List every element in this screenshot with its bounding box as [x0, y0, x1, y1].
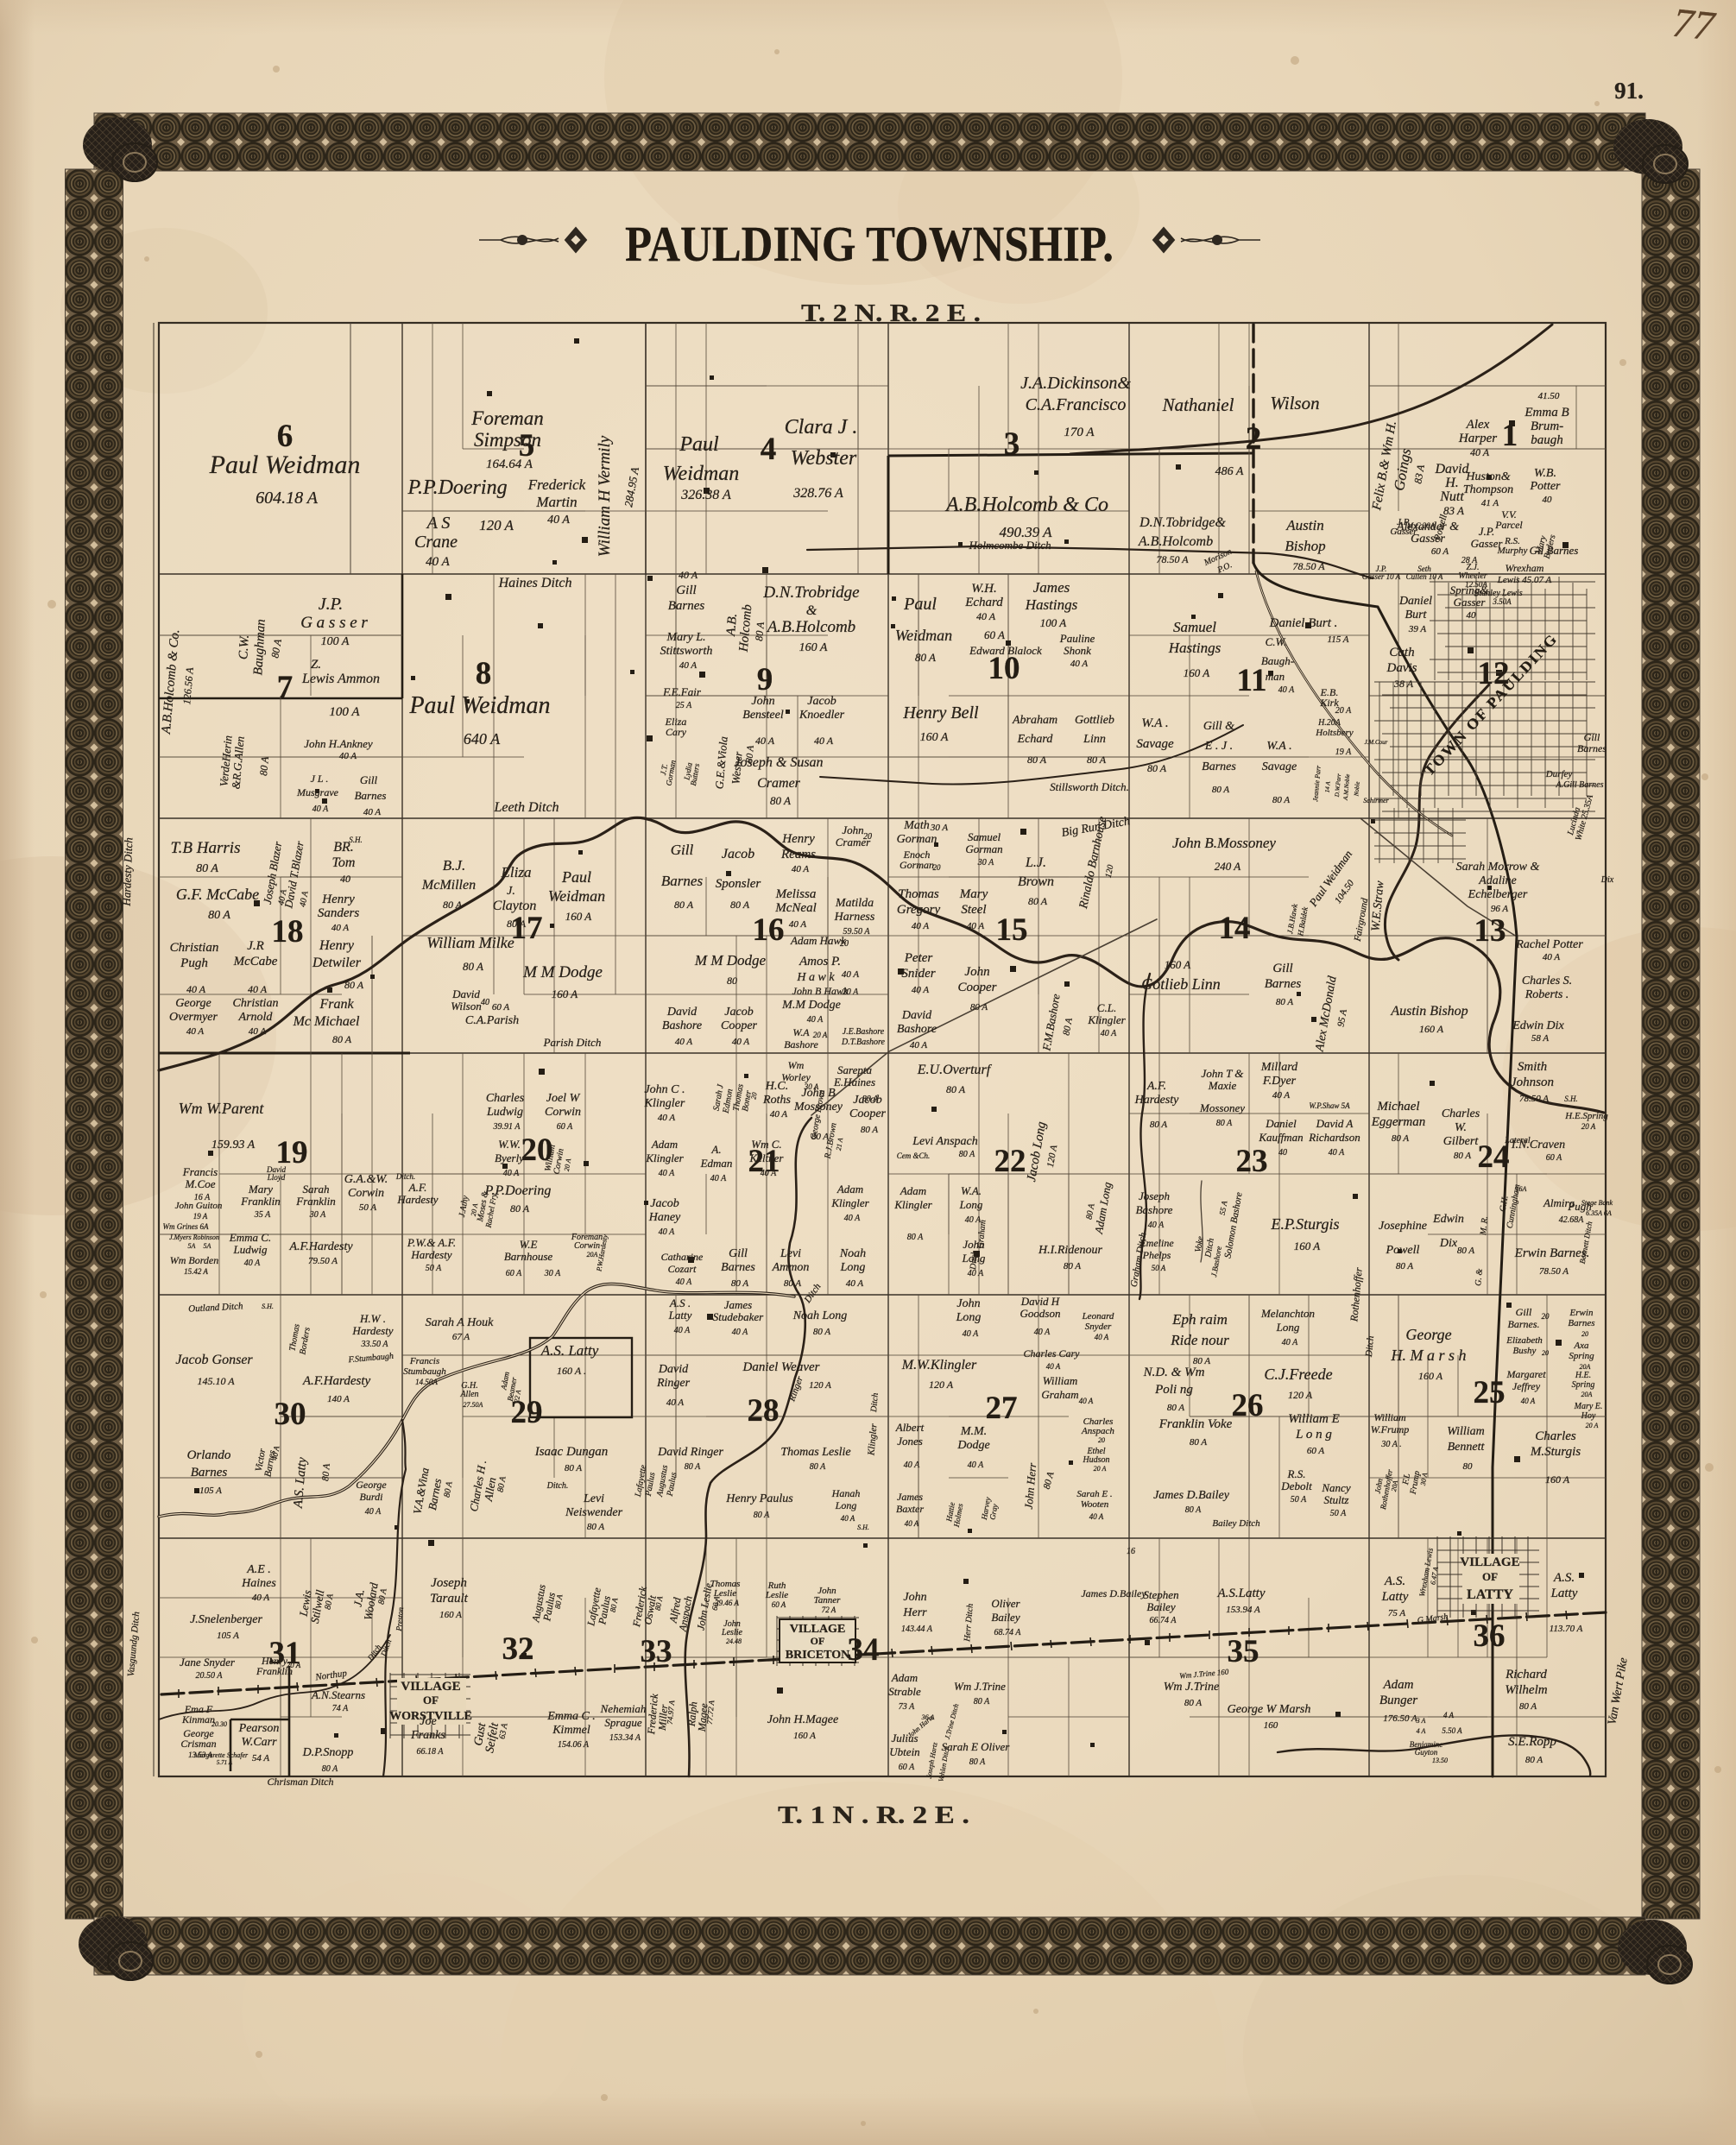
- svg-text:Adam Hawk: Adam Hawk: [790, 934, 846, 947]
- svg-text:6: 6: [277, 419, 294, 454]
- svg-text:326.38 A: 326.38 A: [680, 488, 731, 502]
- svg-text:Ditch: Ditch: [969, 1250, 980, 1271]
- svg-text:James: James: [897, 1491, 923, 1503]
- svg-text:George: George: [175, 997, 211, 1010]
- svg-text:60 A: 60 A: [899, 1763, 915, 1772]
- svg-text:Gasser: Gasser: [1471, 537, 1504, 550]
- svg-text:Gill: Gill: [729, 1247, 748, 1260]
- svg-text:160 A: 160 A: [565, 910, 592, 923]
- svg-text:Pugh: Pugh: [180, 956, 208, 970]
- svg-text:96 A: 96 A: [1491, 904, 1509, 914]
- svg-text:James D.Bailey: James D.Bailey: [1153, 1489, 1230, 1502]
- svg-text:Echard: Echard: [1017, 733, 1054, 746]
- svg-text:Maxie: Maxie: [1208, 1079, 1237, 1092]
- svg-text:40 A: 40 A: [244, 1259, 261, 1268]
- svg-text:35 A: 35 A: [254, 1210, 271, 1220]
- svg-text:James D.Bailey: James D.Bailey: [1081, 1587, 1146, 1599]
- svg-text:100 A: 100 A: [329, 705, 360, 719]
- svg-text:S.H.: S.H.: [857, 1524, 869, 1531]
- svg-text:Knoedler: Knoedler: [799, 709, 845, 722]
- svg-text:40 A: 40 A: [792, 864, 810, 874]
- svg-text:11: 11: [1237, 663, 1267, 698]
- svg-text:Burt: Burt: [1405, 609, 1428, 621]
- svg-text:Paul Weidman: Paul Weidman: [209, 451, 361, 479]
- svg-text:24.48: 24.48: [726, 1637, 742, 1645]
- svg-text:Hardesty: Hardesty: [396, 1193, 438, 1206]
- svg-text:Cath: Cath: [1389, 646, 1414, 659]
- svg-text:Sarah A Houk: Sarah A Houk: [426, 1316, 495, 1329]
- svg-text:40 A: 40 A: [659, 1169, 675, 1178]
- svg-text:39.91 A: 39.91 A: [493, 1122, 521, 1132]
- svg-text:A.N.Stearns: A.N.Stearns: [311, 1688, 365, 1701]
- svg-text:Mc Michael: Mc Michael: [293, 1014, 360, 1029]
- svg-text:Math: Math: [903, 819, 930, 832]
- svg-text:16A: 16A: [1516, 1185, 1527, 1193]
- svg-text:A.B.Holcomb: A.B.Holcomb: [1138, 534, 1213, 549]
- svg-text:40 A: 40 A: [248, 983, 268, 995]
- svg-text:PAULDING TOWNSHIP.: PAULDING TOWNSHIP.: [625, 216, 1114, 272]
- svg-text:&: &: [806, 603, 817, 618]
- svg-text:Guyton: Guyton: [1415, 1748, 1438, 1757]
- svg-text:160 A .: 160 A .: [557, 1365, 586, 1377]
- svg-text:Cullen 10 A: Cullen 10 A: [1406, 572, 1443, 581]
- svg-text:Durfey: Durfey: [1545, 769, 1573, 779]
- svg-text:Savage: Savage: [1262, 760, 1297, 773]
- svg-text:Barnes: Barnes: [1568, 1318, 1594, 1328]
- svg-text:80 A: 80 A: [1028, 895, 1048, 907]
- svg-text:Levi Anspach: Levi Anspach: [912, 1135, 978, 1148]
- svg-text:H a w k: H a w k: [796, 971, 835, 984]
- svg-text:15: 15: [996, 912, 1028, 948]
- svg-text:Emma C .: Emma C .: [546, 1710, 596, 1723]
- svg-text:Adam: Adam: [891, 1671, 918, 1684]
- svg-text:Hanah: Hanah: [831, 1487, 861, 1499]
- svg-text:80 A: 80 A: [1087, 754, 1107, 766]
- svg-text:John B.Mossoney: John B.Mossoney: [1172, 835, 1276, 851]
- svg-text:25: 25: [1474, 1375, 1506, 1410]
- svg-text:Cooper: Cooper: [958, 981, 997, 994]
- svg-text:50 A: 50 A: [1330, 1509, 1347, 1518]
- svg-text:A.F.Hardesty: A.F.Hardesty: [288, 1240, 353, 1253]
- svg-text:Long: Long: [840, 1261, 866, 1274]
- svg-text:Barnes: Barnes: [668, 599, 705, 613]
- svg-text:Paul Weidman: Paul Weidman: [408, 692, 550, 719]
- svg-text:80 A: 80 A: [730, 899, 750, 911]
- svg-text:Ammon: Ammon: [772, 1261, 810, 1274]
- svg-text:Jacob: Jacob: [807, 695, 836, 708]
- svg-text:40 A: 40 A: [761, 1169, 777, 1178]
- svg-text:W.Frump: W.Frump: [1371, 1423, 1410, 1435]
- svg-text:Adam: Adam: [900, 1184, 926, 1197]
- svg-text:Stumbaugh: Stumbaugh: [403, 1366, 446, 1377]
- svg-text:Hastings: Hastings: [1025, 596, 1078, 613]
- svg-text:40 A: 40 A: [1329, 1148, 1345, 1158]
- svg-text:T.B Harris: T.B Harris: [171, 839, 241, 857]
- svg-text:Bensteel: Bensteel: [742, 709, 784, 722]
- svg-text:6.35A 6A: 6.35A 6A: [1586, 1209, 1612, 1217]
- svg-text:Wilhelm: Wilhelm: [1505, 1683, 1547, 1697]
- svg-text:40 A: 40 A: [912, 985, 930, 995]
- svg-text:40 A: 40 A: [674, 1326, 691, 1335]
- svg-text:Jacob: Jacob: [724, 1006, 753, 1019]
- svg-text:W.H.: W.H.: [971, 582, 996, 596]
- svg-text:G a s s e r: G a s s e r: [300, 614, 368, 632]
- svg-text:Bishop: Bishop: [1285, 538, 1325, 554]
- svg-text:145.10 A: 145.10 A: [197, 1375, 235, 1387]
- svg-text:80 A: 80 A: [731, 1278, 749, 1289]
- svg-text:M.Sturgis: M.Sturgis: [1530, 1445, 1581, 1459]
- svg-text:Goodson: Goodson: [1020, 1307, 1061, 1320]
- svg-text:120 A: 120 A: [479, 517, 514, 533]
- svg-text:Roths: Roths: [762, 1094, 791, 1107]
- svg-text:Haney: Haney: [648, 1211, 681, 1224]
- svg-text:Snyder: Snyder: [1085, 1322, 1112, 1332]
- svg-text:John: John: [842, 823, 863, 836]
- svg-text:W.B.: W.B.: [1534, 467, 1556, 480]
- svg-text:Frederick: Frederick: [527, 476, 586, 493]
- svg-text:Long: Long: [959, 1198, 983, 1211]
- svg-text:McCabe: McCabe: [233, 955, 278, 968]
- svg-text:Gill &: Gill &: [1203, 720, 1234, 733]
- svg-text:640 A: 640 A: [464, 730, 501, 748]
- svg-text:Gorman: Gorman: [897, 833, 937, 846]
- svg-text:Nathaniel: Nathaniel: [1162, 394, 1234, 415]
- svg-text:80 A: 80 A: [1190, 1437, 1208, 1448]
- svg-text:Mary L.: Mary L.: [666, 631, 705, 644]
- svg-text:W.W.: W.W.: [498, 1138, 521, 1151]
- svg-text:3 A: 3 A: [1416, 1717, 1426, 1725]
- svg-text:40 A: 40 A: [1095, 1333, 1109, 1341]
- svg-text:A.S.Latty: A.S.Latty: [1217, 1587, 1266, 1600]
- svg-text:Gottlieb: Gottlieb: [1075, 714, 1114, 727]
- svg-text:Kinman: Kinman: [181, 1713, 215, 1725]
- svg-text:80 A: 80 A: [443, 899, 463, 911]
- svg-text:40 A: 40 A: [312, 804, 329, 814]
- svg-text:man: man: [1266, 670, 1285, 683]
- svg-text:19 A: 19 A: [193, 1212, 208, 1221]
- svg-text:H.20A: H.20A: [1317, 718, 1341, 728]
- svg-text:John H.Magee: John H.Magee: [767, 1713, 838, 1726]
- svg-text:Gasser: Gasser: [1454, 596, 1487, 609]
- svg-text:David A: David A: [1316, 1117, 1354, 1130]
- svg-text:Wilson: Wilson: [451, 1000, 481, 1013]
- svg-text:Leonard: Leonard: [1082, 1311, 1114, 1322]
- svg-text:80 A: 80 A: [754, 1511, 770, 1520]
- svg-text:William: William: [1043, 1374, 1077, 1387]
- svg-text:Weidman: Weidman: [895, 627, 952, 644]
- svg-text:D.N.Trobridge: D.N.Trobridge: [762, 584, 859, 602]
- svg-text:40 A: 40 A: [252, 1593, 270, 1603]
- svg-text:80 A: 80 A: [1064, 1261, 1082, 1271]
- svg-text:41.50: 41.50: [1538, 391, 1560, 401]
- svg-text:A.F.: A.F.: [408, 1181, 427, 1194]
- svg-text:80 A: 80 A: [1184, 1698, 1203, 1708]
- svg-text:Julius: Julius: [891, 1732, 918, 1744]
- svg-text:Crane: Crane: [414, 533, 458, 552]
- svg-text:40 A: 40 A: [1089, 1512, 1104, 1521]
- svg-text:D.N.Tobridge&: D.N.Tobridge&: [1139, 515, 1226, 530]
- svg-text:80 A: 80 A: [1525, 1755, 1543, 1765]
- svg-text:159.93 A: 159.93 A: [211, 1139, 256, 1151]
- svg-text:Bailey Ditch: Bailey Ditch: [1212, 1518, 1260, 1529]
- svg-text:Clayton: Clayton: [493, 899, 537, 913]
- svg-text:80 A: 80 A: [320, 1463, 332, 1482]
- svg-text:Henry: Henry: [319, 938, 355, 953]
- svg-text:Stultz: Stultz: [1324, 1493, 1349, 1506]
- svg-text:Gilbert: Gilbert: [1443, 1135, 1480, 1148]
- svg-text:J.Myers Robinson: J.Myers Robinson: [169, 1233, 219, 1241]
- svg-text:40 A: 40 A: [365, 1507, 382, 1517]
- svg-text:Edward Blalock: Edward Blalock: [969, 644, 1042, 657]
- svg-text:Graham: Graham: [1041, 1388, 1078, 1401]
- svg-text:80 A: 80 A: [1150, 1120, 1168, 1130]
- svg-text:Pauline: Pauline: [1059, 632, 1095, 645]
- svg-text:30 A: 30 A: [309, 1210, 326, 1220]
- svg-text:160 A: 160 A: [1184, 666, 1210, 679]
- svg-text:8: 8: [476, 656, 492, 691]
- svg-text:John C .: John C .: [644, 1083, 685, 1096]
- svg-text:Daniel: Daniel: [1265, 1117, 1297, 1130]
- svg-text:Jeffrey: Jeffrey: [1512, 1380, 1541, 1392]
- svg-text:D.T.Bashore: D.T.Bashore: [841, 1038, 886, 1047]
- svg-text:3.50A: 3.50A: [1492, 597, 1512, 606]
- svg-text:Charles: Charles: [1535, 1429, 1576, 1443]
- svg-text:22: 22: [994, 1144, 1026, 1179]
- svg-text:Jane Snyder: Jane Snyder: [180, 1656, 236, 1669]
- svg-text:Wooten: Wooten: [1081, 1499, 1109, 1510]
- svg-text:20: 20: [840, 939, 849, 949]
- svg-text:Paul: Paul: [561, 868, 591, 886]
- svg-text:Overmyer: Overmyer: [169, 1011, 218, 1024]
- svg-text:40 A: 40 A: [910, 1040, 928, 1050]
- svg-text:Franklin: Franklin: [240, 1195, 281, 1208]
- svg-text:Edwin: Edwin: [1432, 1213, 1464, 1226]
- svg-text:40 A: 40 A: [807, 1015, 824, 1025]
- svg-text:60 A: 60 A: [1546, 1153, 1562, 1163]
- svg-text:100 A: 100 A: [1040, 616, 1067, 629]
- svg-text:Bennett: Bennett: [1448, 1441, 1486, 1454]
- svg-text:4: 4: [761, 432, 777, 467]
- svg-text:20: 20: [863, 832, 872, 842]
- svg-text:Wm W.Parent: Wm W.Parent: [179, 1100, 265, 1117]
- svg-text:Charles Cary: Charles Cary: [1023, 1347, 1080, 1360]
- svg-text:60 A: 60 A: [984, 628, 1005, 641]
- svg-text:R.S.: R.S.: [1287, 1467, 1306, 1480]
- svg-text:Albert: Albert: [895, 1421, 925, 1434]
- svg-text:9: 9: [757, 662, 773, 697]
- svg-text:Edman: Edman: [700, 1157, 733, 1170]
- svg-text:Henry: Henry: [321, 893, 355, 906]
- svg-text:78.50 A: 78.50 A: [1539, 1266, 1569, 1277]
- svg-text:Levi: Levi: [780, 1247, 801, 1260]
- svg-text:Cramer: Cramer: [757, 776, 801, 791]
- svg-text:J.P.: J.P.: [319, 595, 344, 614]
- svg-text:Melissa: Melissa: [775, 887, 817, 901]
- svg-text:20A: 20A: [1580, 1363, 1591, 1371]
- svg-text:80 A: 80 A: [744, 745, 756, 764]
- svg-text:LATTY: LATTY: [1467, 1587, 1513, 1602]
- svg-text:Jacob: Jacob: [650, 1197, 679, 1210]
- svg-text:80 A: 80 A: [507, 918, 527, 930]
- svg-text:30 A: 30 A: [930, 823, 949, 833]
- svg-text:H.E.: H.E.: [1575, 1371, 1591, 1380]
- svg-text:Leslie: Leslie: [713, 1588, 736, 1599]
- svg-text:A.E .: A.E .: [246, 1563, 271, 1576]
- svg-text:Erwin: Erwin: [1569, 1308, 1594, 1318]
- svg-text:H.: H.: [1444, 476, 1459, 490]
- svg-text:M M Dodge: M M Dodge: [694, 952, 767, 968]
- svg-text:40: 40: [340, 873, 350, 885]
- svg-text:78.50 A: 78.50 A: [1519, 1094, 1549, 1104]
- svg-text:Thomas Leslie: Thomas Leslie: [780, 1446, 850, 1459]
- svg-text:Holmcombe Ditch: Holmcombe Ditch: [969, 539, 1051, 552]
- svg-text:80 A: 80 A: [770, 794, 791, 807]
- svg-text:N.D. & Wm: N.D. & Wm: [1143, 1366, 1205, 1379]
- svg-text:16: 16: [753, 912, 785, 948]
- svg-text:Alex: Alex: [1466, 418, 1490, 432]
- svg-text:604.18 A: 604.18 A: [256, 489, 319, 508]
- svg-text:18: 18: [272, 914, 304, 949]
- svg-text:5.50 A: 5.50 A: [1442, 1726, 1462, 1735]
- svg-text:40 A: 40 A: [814, 735, 834, 747]
- svg-text:M.M Dodge: M.M Dodge: [781, 999, 841, 1012]
- svg-text:Gill: Gill: [1584, 731, 1600, 743]
- svg-text:26: 26: [1232, 1388, 1264, 1423]
- svg-text:OF: OF: [811, 1635, 825, 1647]
- svg-text:80 A: 80 A: [1457, 1246, 1475, 1256]
- svg-text:80 A: 80 A: [208, 909, 230, 922]
- svg-text:Ludwig: Ludwig: [232, 1243, 268, 1256]
- svg-text:Wilson: Wilson: [1270, 393, 1319, 413]
- svg-text:Phelps: Phelps: [1142, 1249, 1171, 1261]
- svg-text:154.06 A: 154.06 A: [558, 1740, 590, 1750]
- svg-text:113.70 A: 113.70 A: [1550, 1624, 1583, 1634]
- svg-text:240 A: 240 A: [1215, 860, 1241, 873]
- svg-text:Linn: Linn: [1083, 733, 1106, 746]
- svg-text:486 A: 486 A: [1215, 465, 1244, 478]
- svg-text:Gorman: Gorman: [900, 859, 934, 871]
- svg-text:170 A: 170 A: [1064, 426, 1095, 439]
- svg-text:Emma C.: Emma C.: [229, 1231, 271, 1244]
- svg-text:A.: A.: [710, 1143, 721, 1156]
- svg-text:Stephen: Stephen: [1143, 1588, 1178, 1601]
- svg-text:40 A: 40 A: [186, 1026, 205, 1037]
- svg-text:Brum-: Brum-: [1531, 420, 1563, 433]
- svg-text:14 A: 14 A: [1323, 780, 1331, 792]
- svg-text:Poli ng: Poli ng: [1154, 1383, 1193, 1397]
- svg-text:Thomas: Thomas: [898, 887, 939, 901]
- svg-text:Kauffman: Kauffman: [1258, 1131, 1303, 1144]
- svg-text:25 A: 25 A: [676, 701, 692, 710]
- svg-text:G.A.&W.: G.A.&W.: [344, 1173, 388, 1186]
- svg-text:Gill: Gill: [1516, 1306, 1532, 1318]
- svg-text:A.B.: A.B.: [724, 613, 740, 637]
- svg-text:73 A: 73 A: [899, 1702, 915, 1712]
- svg-text:W.A .: W.A .: [1266, 740, 1291, 753]
- svg-text:80 A: 80 A: [784, 1278, 802, 1289]
- svg-text:W.: W.: [1455, 1121, 1467, 1134]
- svg-text:50 A: 50 A: [1291, 1495, 1307, 1505]
- svg-text:42.68A: 42.68A: [1559, 1215, 1585, 1225]
- svg-text:Tarault: Tarault: [430, 1592, 468, 1606]
- svg-text:W.A .: W.A .: [1141, 716, 1168, 730]
- svg-text:J.P.: J.P.: [1479, 525, 1495, 538]
- svg-text:Wrexham: Wrexham: [1506, 562, 1544, 574]
- svg-text:Corwin: Corwin: [574, 1241, 600, 1251]
- svg-text:Barnes: Barnes: [1577, 742, 1607, 754]
- svg-text:W.E: W.E: [520, 1238, 538, 1251]
- svg-text:Sprague: Sprague: [604, 1716, 642, 1729]
- svg-text:John B Hawk: John B Hawk: [792, 985, 849, 997]
- svg-text:Samuel: Samuel: [968, 830, 1001, 843]
- svg-text:Parcel: Parcel: [1494, 519, 1523, 531]
- svg-text:Haines: Haines: [241, 1577, 276, 1590]
- svg-text:Strable: Strable: [888, 1685, 921, 1698]
- svg-text:Catharine: Catharine: [661, 1251, 704, 1263]
- svg-text:Wm: Wm: [788, 1059, 805, 1071]
- svg-text:40 A: 40 A: [842, 969, 860, 980]
- svg-text:80 A: 80 A: [332, 1033, 352, 1045]
- svg-text:20 A: 20 A: [813, 1031, 828, 1039]
- svg-text:Snider: Snider: [901, 967, 935, 981]
- svg-text:Lewis 45.07 A: Lewis 45.07 A: [1497, 575, 1552, 585]
- svg-text:160 A: 160 A: [799, 641, 828, 654]
- svg-text:Lateral: Lateral: [1504, 1136, 1531, 1145]
- svg-text:Gasser 10 A: Gasser 10 A: [1362, 572, 1401, 581]
- svg-text:40 A: 40 A: [912, 921, 930, 931]
- svg-text:Eph raim: Eph raim: [1171, 1311, 1228, 1328]
- svg-text:40 A: 40 A: [249, 1026, 267, 1037]
- svg-text:153.34 A: 153.34 A: [609, 1733, 641, 1743]
- svg-text:40 A: 40 A: [905, 1519, 919, 1528]
- svg-text:Francis: Francis: [182, 1165, 218, 1178]
- svg-text:40 A: 40 A: [363, 807, 382, 817]
- svg-text:14.50A: 14.50A: [415, 1378, 438, 1386]
- svg-text:Klingler: Klingler: [893, 1198, 932, 1211]
- svg-text:80 A: 80 A: [1454, 1151, 1472, 1161]
- svg-text:Schirmer: Schirmer: [1363, 797, 1389, 804]
- svg-text:80 A: 80 A: [1519, 1701, 1537, 1712]
- svg-text:77: 77: [1670, 0, 1718, 50]
- svg-text:Josephine: Josephine: [1379, 1220, 1427, 1233]
- svg-text:120 A: 120 A: [929, 1378, 954, 1391]
- svg-text:34: 34: [848, 1632, 880, 1668]
- svg-text:40 A: 40 A: [1034, 1328, 1051, 1337]
- svg-text:McMillen: McMillen: [421, 878, 476, 893]
- svg-text:M.M.: M.M.: [960, 1425, 987, 1438]
- svg-text:Barnes: Barnes: [1265, 977, 1302, 991]
- svg-text:C.A.Parish: C.A.Parish: [465, 1014, 519, 1027]
- svg-text:G.F. McCabe: G.F. McCabe: [176, 886, 259, 903]
- svg-text:Rachel Potter: Rachel Potter: [1515, 938, 1583, 951]
- svg-text:Ubtein: Ubtein: [889, 1745, 919, 1758]
- svg-text:Emeline: Emeline: [1139, 1237, 1174, 1249]
- svg-text:Smith: Smith: [1518, 1060, 1547, 1074]
- svg-text:Leeth Ditch: Leeth Ditch: [493, 800, 559, 815]
- svg-text:Eggerman: Eggerman: [1371, 1115, 1426, 1129]
- svg-text:120 A: 120 A: [1288, 1389, 1313, 1401]
- svg-text:Gill: Gill: [360, 773, 378, 786]
- svg-text:Potter: Potter: [1530, 480, 1562, 493]
- svg-text:60 A: 60 A: [492, 1002, 510, 1013]
- svg-text:Matilda: Matilda: [835, 897, 874, 910]
- svg-text:Christian: Christian: [170, 941, 219, 955]
- svg-text:2: 2: [1246, 421, 1262, 457]
- svg-text:Christian: Christian: [233, 997, 279, 1010]
- svg-text:Bailey: Bailey: [991, 1611, 1020, 1624]
- svg-text:Musgrave: Musgrave: [296, 786, 339, 798]
- svg-text:Nutt: Nutt: [1439, 489, 1464, 504]
